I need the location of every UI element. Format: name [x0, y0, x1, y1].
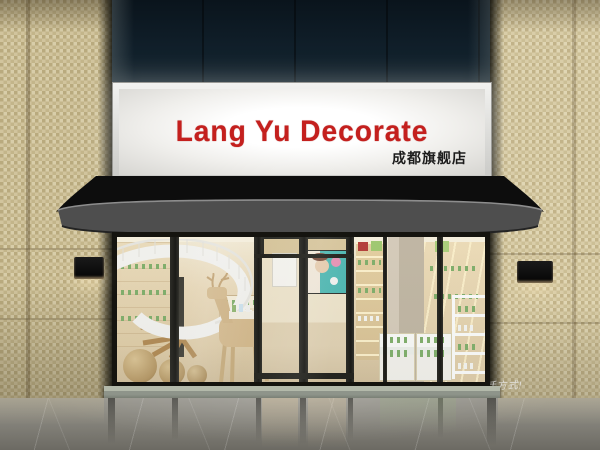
green-products-row: [383, 350, 410, 357]
awning-shape: [0, 176, 600, 236]
sign-main-text: Lang Yu Decorate: [130, 115, 474, 149]
facade-right-edge-highlight: [468, 0, 490, 88]
awning-fascia: [58, 200, 542, 235]
white-products-row: [458, 363, 476, 369]
poster-cream-jar: [330, 277, 338, 285]
green-products-row: [358, 260, 381, 265]
floor-reflection-streak: [348, 398, 353, 440]
tile-seam: [490, 253, 600, 255]
poster-flower: [331, 257, 341, 267]
awning: simple!另一种生活方式!: [0, 176, 600, 236]
upper-facade-panels: [112, 0, 490, 88]
ladder-shelf-tier: [455, 314, 485, 317]
floor-tile-reflection: [0, 398, 104, 424]
ladder-shelf-tier: [455, 352, 485, 355]
storefront-render: Lang Yu Decorate 成都旗舰店 simple!另一种生活方式!: [0, 0, 600, 450]
white-products-row: [358, 316, 381, 321]
window-mullion: [437, 237, 443, 382]
rattan-ball: [123, 349, 157, 382]
deer-head: [207, 287, 227, 299]
rattan-ball: [187, 365, 207, 382]
floor-reflection-streak: [487, 398, 496, 446]
green-shelf-sign: [371, 241, 382, 251]
floor-warm-reflection: [308, 398, 346, 448]
ladder-shelf-tier: [455, 371, 485, 374]
window-mullion: [383, 237, 387, 382]
tray-bottle: [239, 304, 243, 312]
sign-sub-text: 成都旗舰店: [392, 148, 467, 168]
green-products-row: [383, 337, 410, 343]
wall-sconce-right: [517, 261, 553, 283]
tray-bottle: [232, 305, 236, 312]
tile-seam: [0, 318, 112, 320]
door-transom-bar: [254, 254, 354, 258]
door-bottom-rail: [254, 373, 354, 379]
poster-face: [315, 259, 329, 273]
floor-warm-reflection: [262, 398, 298, 448]
marble-floor: [0, 398, 600, 450]
door-jamb-left: [254, 237, 262, 382]
ladder-shelf-tier: [455, 333, 485, 336]
floor-tile-reflection: [498, 398, 600, 424]
floor-reflection-streak: [172, 398, 178, 440]
window-mullion: [170, 237, 179, 382]
facade-left-edge-highlight: [112, 0, 134, 88]
wall-art-frame: [272, 253, 297, 287]
green-products-row: [458, 344, 476, 350]
ladder-shelf: [452, 295, 485, 379]
white-display-cabinet: [416, 333, 452, 381]
storefront-glazing: [112, 232, 490, 388]
store-interior: [117, 237, 485, 382]
green-products-row: [358, 288, 381, 293]
signboard: Lang Yu Decorate 成都旗舰店: [112, 82, 492, 182]
tile-seam: [490, 322, 600, 324]
door-center-stiles: [299, 237, 308, 382]
white-products-row: [458, 325, 476, 331]
door-jamb-right: [346, 237, 354, 382]
floor-reflection-streak: [300, 398, 306, 444]
red-shelf-sign: [358, 242, 368, 251]
green-products-row: [458, 306, 476, 312]
deer-antlers: [207, 273, 229, 287]
tray-bottle: [246, 305, 250, 312]
tile-seam: [0, 248, 112, 250]
floor-reflection-streak: [108, 398, 115, 444]
floor-green-reflection: [380, 398, 456, 432]
floor-reflection-streak: [256, 398, 261, 442]
ladder-shelf-tier: [455, 295, 485, 298]
wall-sconce-left: [74, 257, 104, 279]
signboard-face: Lang Yu Decorate 成都旗舰店: [119, 89, 485, 175]
